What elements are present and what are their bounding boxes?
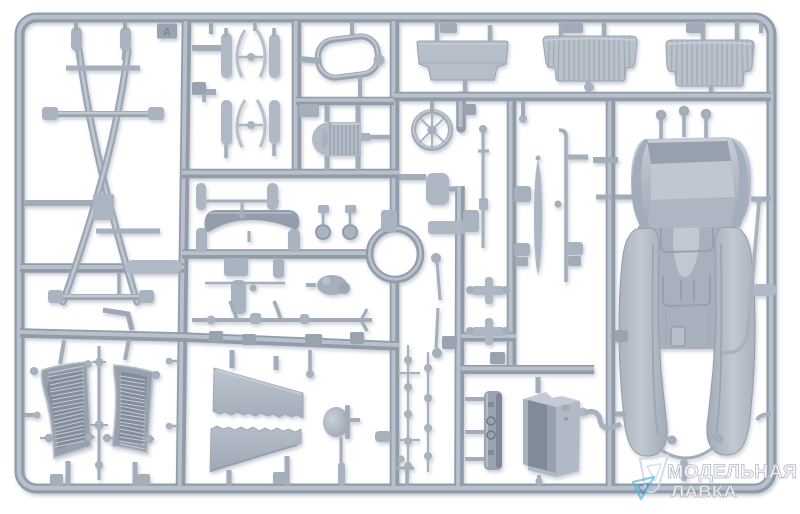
- svg-text:МОДЕЛЬНАЯ: МОДЕЛЬНАЯ: [667, 462, 797, 483]
- svg-text:ЛАВКА: ЛАВКА: [671, 482, 737, 501]
- svg-text:A: A: [163, 27, 171, 39]
